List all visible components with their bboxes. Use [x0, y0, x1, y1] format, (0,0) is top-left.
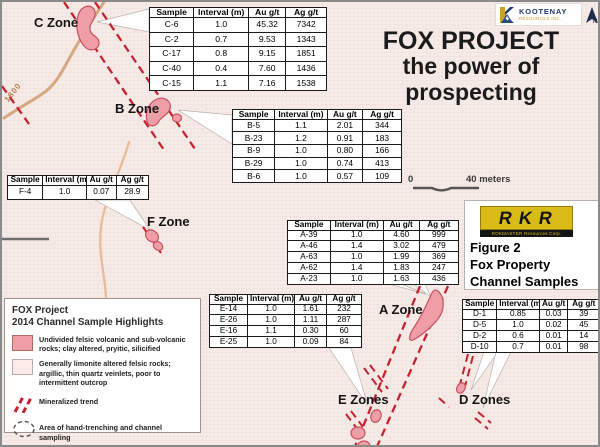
- table-a-zone: SampleInterval (m)Au g/tAg g/tA-391.04.6…: [287, 220, 459, 285]
- table-header-cell: Interval (m): [194, 8, 249, 18]
- table-cell: 1851: [286, 47, 327, 62]
- table-cell: F-4: [8, 185, 43, 199]
- table-cell: B-29: [233, 157, 275, 170]
- table-cell: 0.07: [86, 185, 116, 199]
- scale-bar-zero: 0: [408, 174, 413, 185]
- table-header-cell: Sample: [210, 295, 248, 305]
- table-cell: 1.1: [248, 326, 295, 337]
- table-header-cell: Ag g/t: [286, 8, 327, 18]
- table-cell: 14: [568, 331, 600, 342]
- rokmaster-logo-bar: ROKMASTER Resources Corp.: [480, 230, 573, 237]
- table-cell: A-23: [288, 274, 331, 285]
- table-cell: 1.2: [275, 132, 327, 145]
- table-cell: 9.15: [249, 47, 286, 62]
- table-cell: 344: [363, 119, 402, 132]
- table-cell: D-2: [463, 331, 497, 342]
- table-cell: 436: [419, 274, 458, 285]
- table-cell: 3.02: [383, 241, 419, 252]
- table-cell: 7.60: [249, 61, 286, 76]
- title-line-1: FOX PROJECT: [342, 28, 600, 54]
- scale-bar-line: [413, 188, 479, 190]
- table-row: B-231.20.91183: [233, 132, 402, 145]
- kootenay-logo-icon: [498, 6, 517, 24]
- table-row: E-141.01.61232: [210, 304, 362, 315]
- figure-caption-line3: Channel Samples: [470, 274, 578, 291]
- table-row: C-61.045.327342: [150, 18, 327, 33]
- table-row: E-261.01.11287: [210, 315, 362, 326]
- table-cell: 1.0: [330, 252, 383, 263]
- table-cell: 0.85: [497, 309, 539, 320]
- table-header-cell: Interval (m): [275, 110, 327, 120]
- legend-box: FOX Project 2014 Channel Sample Highligh…: [4, 298, 201, 433]
- callout-wedge-c: [97, 9, 149, 32]
- north-arrow: N: [583, 5, 600, 29]
- table-cell: A-39: [288, 230, 331, 241]
- legend-item-3-text: Mineralized trend: [39, 393, 98, 406]
- legend-title-line2: 2014 Channel Sample Highlights: [12, 317, 194, 329]
- table-cell: 1.63: [383, 274, 419, 285]
- table-cell: 1.0: [194, 18, 249, 33]
- table-cell: 0.03: [539, 309, 568, 320]
- table-header-cell: Ag g/t: [327, 295, 362, 305]
- table-cell: 1.0: [330, 274, 383, 285]
- zone-blob-e1: [369, 408, 383, 424]
- table-row: C-170.89.151851: [150, 47, 327, 62]
- table-row: F-41.00.0728.9: [8, 185, 149, 199]
- rokmaster-logo: RKR: [480, 206, 573, 230]
- table-cell: 0.7: [497, 342, 539, 353]
- zone-label-a: A Zone: [379, 302, 423, 317]
- table-cell: 0.30: [295, 326, 327, 337]
- scale-bar-max: 40 meters: [466, 174, 510, 185]
- table-cell: 1.0: [275, 145, 327, 158]
- table-header-cell: Sample: [288, 221, 331, 231]
- table-header-cell: Au g/t: [295, 295, 327, 305]
- table-header-cell: Au g/t: [249, 8, 286, 18]
- table-cell: 287: [327, 315, 362, 326]
- mineralized-trend-icon: [12, 393, 36, 413]
- table-row: B-61.00.57109: [233, 170, 402, 183]
- table-cell: 0.4: [194, 61, 249, 76]
- table-header-row: SampleInterval (m)Au g/tAg g/t: [463, 300, 600, 310]
- zone-blob-e3: [358, 441, 370, 447]
- table-cell: 166: [363, 145, 402, 158]
- table-header-cell: Sample: [8, 176, 43, 186]
- kootenay-name: KOOTENAY: [519, 8, 567, 16]
- table-header-row: SampleInterval (m)Au g/tAg g/t: [288, 221, 459, 231]
- table-cell: 183: [363, 132, 402, 145]
- table-row: A-461.43.02479: [288, 241, 459, 252]
- legend-item-undivided-felsic: Undivided felsic volcanic and sub-volcan…: [12, 335, 194, 354]
- table-row: C-151.17.161538: [150, 76, 327, 91]
- table-cell: A-46: [288, 241, 331, 252]
- table-cell: 1.0: [43, 185, 87, 199]
- rokmaster-acronym: RKR: [493, 209, 560, 227]
- table-header-cell: Sample: [233, 110, 275, 120]
- table-cell: 109: [363, 170, 402, 183]
- rokmaster-bar-text: ROKMASTER Resources Corp.: [492, 231, 562, 236]
- kootenay-logo-text: KOOTENAY RESOURCES INC.: [519, 8, 567, 21]
- figure-caption-line1: Figure 2: [470, 240, 578, 257]
- zone-label-f: F Zone: [147, 214, 190, 229]
- table-header-row: SampleInterval (m)Au g/tAg g/t: [8, 176, 149, 186]
- table-cell: B-5: [233, 119, 275, 132]
- table-cell: 0.8: [194, 47, 249, 62]
- legend-item-1-text: Undivided felsic volcanic and sub-volcan…: [39, 335, 194, 354]
- table-header-cell: Interval (m): [330, 221, 383, 231]
- table-cell: E-14: [210, 304, 248, 315]
- table-header-cell: Au g/t: [86, 176, 116, 186]
- table-cell: 1.0: [248, 315, 295, 326]
- kootenay-sub: RESOURCES INC.: [519, 17, 567, 21]
- table-row: C-400.47.601436: [150, 61, 327, 76]
- table-cell: D-5: [463, 320, 497, 331]
- table-cell: 0.57: [327, 170, 362, 183]
- table-row: E-251.00.0984: [210, 337, 362, 348]
- table-cell: 0.6: [497, 331, 539, 342]
- table-cell: B-9: [233, 145, 275, 158]
- table-cell: 1343: [286, 32, 327, 47]
- zone-blob-b2: [173, 114, 182, 122]
- limonite-felsic-swatch: [12, 359, 33, 375]
- table-cell: 1.0: [275, 157, 327, 170]
- table-cell: 1.4: [330, 263, 383, 274]
- table-cell: 0.01: [539, 342, 568, 353]
- felsic-volcanic-swatch: [12, 335, 33, 351]
- table-e-zone: SampleInterval (m)Au g/tAg g/tE-141.01.6…: [209, 294, 362, 348]
- table-cell: E-26: [210, 315, 248, 326]
- table-cell: 0.02: [539, 320, 568, 331]
- table-cell: 1.0: [497, 320, 539, 331]
- zone-label-d: D Zones: [459, 392, 510, 407]
- table-row: B-91.00.80166: [233, 145, 402, 158]
- zone-label-e: E Zones: [338, 392, 389, 407]
- table-cell: 39: [568, 309, 600, 320]
- table-cell: 4.60: [383, 230, 419, 241]
- table-cell: 60: [327, 326, 362, 337]
- table-cell: 1.11: [295, 315, 327, 326]
- figure-caption-box: RKR ROKMASTER Resources Corp. Figure 2 F…: [464, 200, 600, 290]
- table-cell: 84: [327, 337, 362, 348]
- table-cell: 1.1: [194, 76, 249, 91]
- table-cell: 1.0: [330, 230, 383, 241]
- table-cell: B-23: [233, 132, 275, 145]
- trend-seg-d5: [475, 418, 488, 429]
- table-cell: 0.91: [327, 132, 362, 145]
- table-cell: A-63: [288, 252, 331, 263]
- table-cell: 1.4: [330, 241, 383, 252]
- table-cell: 1.1: [275, 119, 327, 132]
- table-header-cell: Sample: [463, 300, 497, 310]
- table-cell: 1538: [286, 76, 327, 91]
- table-cell: 7342: [286, 18, 327, 33]
- zone-blob-c: [77, 6, 99, 50]
- table-row: D-51.00.0245: [463, 320, 600, 331]
- table-cell: D-1: [463, 309, 497, 320]
- table-cell: 369: [419, 252, 458, 263]
- table-f-zone: SampleInterval (m)Au g/tAg g/tF-41.00.07…: [7, 175, 149, 200]
- contour-line-2: [100, 142, 129, 298]
- table-cell: A-62: [288, 263, 331, 274]
- table-row: A-391.04.60999: [288, 230, 459, 241]
- trenching-area-icon: [12, 419, 36, 439]
- table-cell: C-17: [150, 47, 194, 62]
- table-cell: 0.09: [295, 337, 327, 348]
- table-header-cell: Interval (m): [497, 300, 539, 310]
- table-header-cell: Ag g/t: [419, 221, 458, 231]
- table-row: A-231.01.63436: [288, 274, 459, 285]
- legend-item-4-text: Area of hand-trenching and channel sampl…: [39, 419, 194, 442]
- legend-item-limonite-felsic: Generally limonite altered felsic rocks;…: [12, 359, 194, 387]
- table-header-row: SampleInterval (m)Au g/tAg g/t: [210, 295, 362, 305]
- table-cell: 28.9: [116, 185, 148, 199]
- table-header-cell: Au g/t: [327, 110, 362, 120]
- zone-blob-e2: [351, 427, 365, 439]
- table-cell: E-16: [210, 326, 248, 337]
- table-header-cell: Interval (m): [43, 176, 87, 186]
- table-cell: 1.0: [248, 304, 295, 315]
- table-header-row: SampleInterval (m)Au g/tAg g/t: [233, 110, 402, 120]
- table-cell: 479: [419, 241, 458, 252]
- table-cell: 1.83: [383, 263, 419, 274]
- table-cell: C-15: [150, 76, 194, 91]
- table-cell: 999: [419, 230, 458, 241]
- table-header-cell: Ag g/t: [116, 176, 148, 186]
- table-cell: 9.53: [249, 32, 286, 47]
- legend-item-trenching-area: Area of hand-trenching and channel sampl…: [12, 419, 194, 442]
- legend-item-mineralized-trend: Mineralized trend: [12, 393, 194, 413]
- figure-caption-line2: Fox Property: [470, 257, 578, 274]
- table-row: A-631.01.99369: [288, 252, 459, 263]
- table-cell: C-2: [150, 32, 194, 47]
- table-cell: 1.0: [248, 337, 295, 348]
- table-cell: 232: [327, 304, 362, 315]
- table-row: B-291.00.74413: [233, 157, 402, 170]
- table-cell: 0.74: [327, 157, 362, 170]
- table-cell: 0.80: [327, 145, 362, 158]
- table-cell: 45.32: [249, 18, 286, 33]
- table-row: D-20.60.0114: [463, 331, 600, 342]
- table-cell: C-40: [150, 61, 194, 76]
- table-header-cell: Au g/t: [539, 300, 568, 310]
- zone-label-c: C Zone: [34, 15, 78, 30]
- trend-seg-d3: [439, 398, 449, 407]
- table-header-cell: Sample: [150, 8, 194, 18]
- callout-wedge-b: [178, 110, 232, 144]
- table-header-cell: Ag g/t: [363, 110, 402, 120]
- table-cell: B-6: [233, 170, 275, 183]
- table-b-zone: SampleInterval (m)Au g/tAg g/tB-51.12.01…: [232, 109, 402, 183]
- map-canvas: FOX PROJECT the power of prospecting KOO…: [0, 0, 600, 447]
- page-title: FOX PROJECT the power of prospecting: [342, 28, 600, 105]
- table-row: E-161.10.3060: [210, 326, 362, 337]
- figure-caption: Figure 2 Fox Property Channel Samples: [470, 240, 578, 291]
- table-cell: 98: [568, 342, 600, 353]
- legend-item-2-text: Generally limonite altered felsic rocks;…: [39, 359, 194, 387]
- table-row: D-10.850.0339: [463, 309, 600, 320]
- table-row: D-100.70.0198: [463, 342, 600, 353]
- table-c-zone: SampleInterval (m)Au g/tAg g/tC-61.045.3…: [149, 7, 327, 91]
- table-header-cell: Au g/t: [383, 221, 419, 231]
- title-line-2: the power of prospecting: [342, 54, 600, 105]
- table-cell: 0.01: [539, 331, 568, 342]
- table-cell: 2.01: [327, 119, 362, 132]
- table-cell: D-10: [463, 342, 497, 353]
- table-cell: 1.99: [383, 252, 419, 263]
- table-row: A-621.41.83247: [288, 263, 459, 274]
- north-label: N: [593, 19, 597, 25]
- table-cell: 1436: [286, 61, 327, 76]
- table-cell: 413: [363, 157, 402, 170]
- table-header-row: SampleInterval (m)Au g/tAg g/t: [150, 8, 327, 18]
- table-row: C-20.79.531343: [150, 32, 327, 47]
- table-header-cell: Interval (m): [248, 295, 295, 305]
- table-cell: 247: [419, 263, 458, 274]
- table-cell: 0.7: [194, 32, 249, 47]
- zone-label-b: B Zone: [115, 101, 159, 116]
- table-row: B-51.12.01344: [233, 119, 402, 132]
- table-cell: 1.61: [295, 304, 327, 315]
- kootenay-logo: KOOTENAY RESOURCES INC.: [495, 3, 582, 26]
- table-cell: E-25: [210, 337, 248, 348]
- table-cell: 1.0: [275, 170, 327, 183]
- table-header-cell: Ag g/t: [568, 300, 600, 310]
- table-d-zone: SampleInterval (m)Au g/tAg g/tD-10.850.0…: [462, 299, 600, 353]
- trend-seg-e4: [351, 411, 363, 427]
- table-cell: C-6: [150, 18, 194, 33]
- table-cell: 45: [568, 320, 600, 331]
- legend-title-line1: FOX Project: [12, 305, 194, 317]
- table-cell: 7.16: [249, 76, 286, 91]
